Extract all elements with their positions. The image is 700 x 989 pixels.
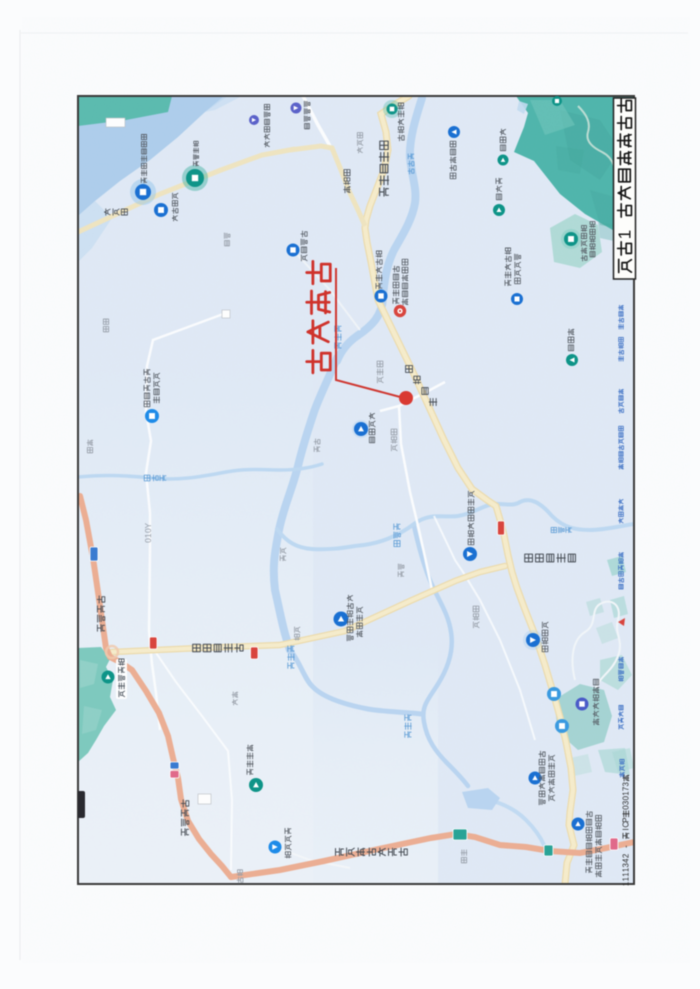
svg-text:-: - [622,845,631,848]
svg-text:3: 3 [622,781,631,786]
svg-text:1: 1 [614,230,634,240]
svg-text:2: 2 [622,854,631,858]
svg-text:Y: Y [143,523,153,529]
svg-text:P: P [622,818,631,823]
svg-text:I: I [622,828,631,830]
